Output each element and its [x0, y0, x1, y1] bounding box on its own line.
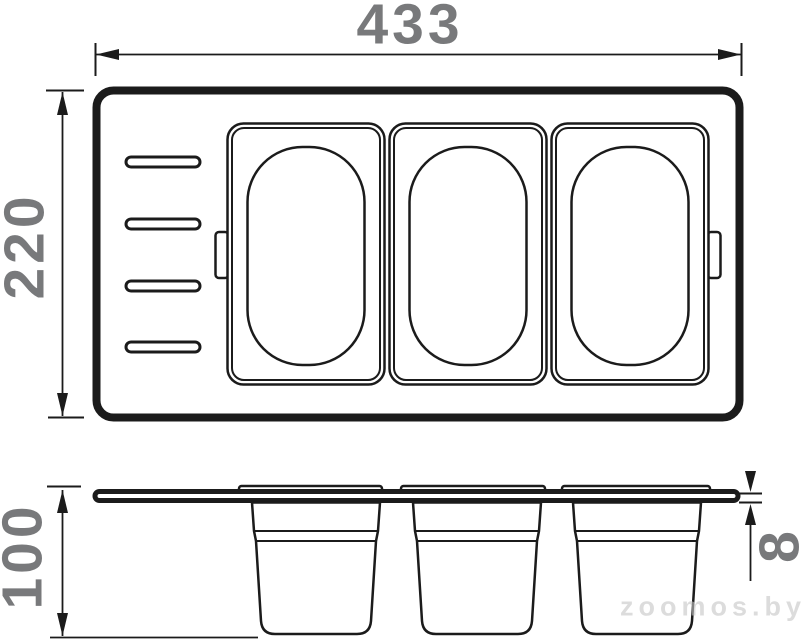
arrowhead-up-icon — [57, 490, 68, 513]
container-2 — [390, 124, 547, 385]
bucket-1-body — [252, 503, 380, 635]
drawing-canvas — [0, 0, 805, 642]
dimension-side-height — [47, 487, 258, 638]
dimension-board-thickness — [739, 471, 762, 581]
container-3-outer-rim — [552, 124, 709, 385]
container-1-outer-rim — [228, 124, 385, 385]
dimension-label-depth: 100 — [0, 502, 52, 609]
slot-3 — [126, 281, 200, 291]
top-view — [97, 91, 740, 418]
dimension-label-height: 220 — [0, 192, 54, 299]
board-profile — [95, 492, 738, 501]
slot-4 — [126, 342, 200, 352]
arrowhead-left-icon — [96, 49, 119, 60]
arrowhead-up-icon — [57, 92, 68, 115]
container-2-outer-rim — [390, 124, 547, 385]
bucket-1 — [252, 503, 380, 635]
arrowhead-down-icon — [57, 393, 68, 416]
arrowhead-up-icon — [745, 504, 756, 525]
technical-drawing: 433 220 100 8 zoomos.by — [0, 0, 805, 642]
dimension-label-width: 433 — [356, 0, 463, 54]
bucket-2-body — [413, 503, 541, 635]
slot-2 — [126, 219, 200, 229]
arrowhead-down-icon — [57, 613, 68, 636]
slot-1 — [126, 157, 200, 167]
arrowhead-down-icon — [745, 471, 756, 492]
arrowhead-right-icon — [718, 49, 741, 60]
bucket-2 — [413, 503, 541, 635]
dimension-label-thickness: 8 — [752, 527, 805, 563]
container-1 — [228, 124, 385, 385]
container-3 — [552, 124, 709, 385]
watermark: zoomos.by — [620, 592, 805, 623]
